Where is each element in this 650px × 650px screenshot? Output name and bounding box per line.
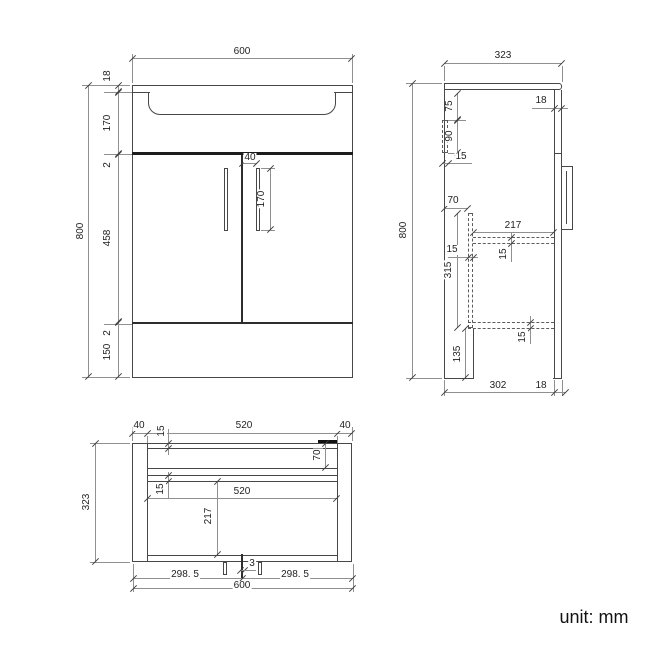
dim-front-handle-length: 170: [257, 190, 267, 209]
ext-line: [82, 377, 130, 378]
plan-left-handle: [223, 562, 227, 575]
side-door-top-joint: [554, 153, 562, 154]
side-shelf-top-hidden: [473, 237, 554, 238]
plan-rail-band-bottom: [147, 481, 337, 482]
dim-line-door-thickness: [532, 108, 568, 109]
dim-side-plinth-height: 135: [453, 345, 463, 364]
dim-front-handle-offset: 40: [243, 153, 256, 163]
dim-line-bracket-height: [457, 120, 458, 153]
side-door-bottom: [553, 378, 562, 379]
dim-side-bracket-offset: 75: [445, 99, 455, 112]
side-carcass-front: [554, 90, 555, 378]
dim-line-rail-depth: [325, 443, 326, 468]
dim-plan-left-panel: 40: [132, 421, 145, 431]
dim-line-front-height: [88, 85, 89, 377]
ext-line: [444, 380, 445, 396]
dim-plan-overall-width: 600: [233, 581, 252, 591]
dim-front-door-height: 458: [103, 229, 113, 248]
front-counter-top: [132, 85, 353, 86]
ext-line: [444, 66, 445, 81]
dim-plan-rail-depth: 70: [313, 448, 323, 461]
dim-line-divider-offset: [444, 208, 468, 209]
dim-line-bracket-offset: [457, 93, 458, 120]
dim-front-overall-height: 800: [76, 222, 86, 241]
dim-line-plan-shelf-depth: [217, 481, 218, 555]
dim-side-overall-height: 800: [399, 221, 409, 240]
dim-side-divider-height: 315: [444, 261, 454, 280]
dim-side-shelf-thickness: 15: [499, 247, 509, 260]
dim-plan-shelf-depth: 217: [204, 507, 214, 526]
side-floor-line-back: [444, 378, 474, 379]
front-basin-bowl: [148, 92, 336, 115]
unit-note: unit: mm: [558, 608, 629, 626]
dim-front-counter-thickness: 18: [103, 69, 113, 82]
side-bottom-panel-top-hidden: [468, 322, 554, 323]
dim-line-door-height: [118, 154, 119, 322]
dim-line-divider-height: [457, 213, 458, 328]
dim-plan-rail-thickness: 15: [156, 482, 166, 495]
front-counter-underside-right: [334, 92, 352, 93]
front-left-door-handle: [224, 168, 228, 231]
ext-line: [147, 436, 148, 443]
dim-side-divider-thickness: 15: [445, 245, 458, 255]
dim-side-bracket-thickness: 15: [454, 152, 467, 162]
dim-side-shelf-depth: 217: [504, 221, 523, 231]
dim-front-basin-zone: 170: [103, 114, 113, 133]
dim-plan-back-thickness: 15: [157, 424, 167, 437]
plan-rail-band-top: [147, 475, 337, 476]
dim-line-side-depth: [444, 63, 562, 64]
dim-line-interior-width: [147, 498, 337, 499]
ext-line: [554, 380, 555, 396]
dim-line-plinth-height: [118, 322, 119, 377]
front-door-bottom-line: [132, 322, 353, 324]
dim-line-basin-zone: [118, 92, 119, 154]
dim-front-overall-width: 600: [233, 47, 252, 57]
dim-front-gap-top: 2: [103, 161, 113, 169]
dim-plan-right-door-width: 298. 5: [280, 570, 310, 580]
dim-line-handle-length: [270, 168, 271, 230]
dim-plan-door-gap: 3: [248, 559, 256, 569]
dim-side-bottom-thickness: 15: [518, 330, 528, 343]
dim-side-overall-depth: 323: [494, 51, 513, 61]
dim-line-plinth-height-side: [465, 328, 466, 378]
side-door-front: [561, 90, 562, 378]
plan-right-handle: [258, 562, 262, 575]
dim-front-plinth-height: 150: [103, 343, 113, 362]
dim-plan-right-panel: 40: [338, 421, 351, 431]
dim-line-body-depth: [444, 392, 566, 393]
side-counter-profile: [444, 83, 562, 90]
front-left-edge: [132, 85, 133, 377]
side-plinth-recess-line: [473, 328, 474, 378]
dim-plan-overall-depth: 323: [82, 493, 92, 512]
plan-left-panel-inner: [147, 443, 148, 562]
ext-line: [337, 436, 338, 443]
dim-plan-top-opening: 520: [235, 421, 254, 431]
ext-line: [352, 427, 353, 441]
dim-side-body-depth: 302: [489, 381, 508, 391]
leader-line: [244, 570, 256, 571]
plan-right-panel-inner: [337, 443, 338, 562]
front-bottom-edge: [132, 377, 353, 378]
side-handle-inner-line: [566, 171, 567, 224]
dim-side-door-front-offset: 18: [534, 381, 547, 391]
ext-line: [90, 562, 130, 563]
dim-line-side-height: [412, 83, 413, 378]
front-right-edge: [352, 85, 353, 377]
dim-side-door-thickness: 18: [534, 96, 547, 106]
plan-back-panel-line: [147, 448, 337, 449]
dim-plan-left-door-width: 298. 5: [170, 570, 200, 580]
dim-side-divider-offset: 70: [446, 196, 459, 206]
side-bottom-panel-bottom-hidden: [468, 328, 554, 329]
dim-front-gap-bottom: 2: [103, 329, 113, 337]
ext-line: [562, 66, 563, 82]
dim-side-bracket-height: 90: [445, 129, 455, 142]
dim-line-front-width: [132, 58, 352, 59]
dim-line-handle-offset: [242, 163, 257, 164]
dim-plan-interior-width: 520: [233, 487, 252, 497]
front-door-split-line: [241, 155, 243, 322]
side-shelf-bottom-hidden: [473, 243, 554, 244]
side-divider-hidden: [468, 213, 473, 328]
technical-drawing-canvas: 600 800 18 170 2 458 2 150 40 170 323 80…: [0, 0, 650, 650]
side-handle-profile: [561, 166, 573, 230]
dim-line-plan-depth: [95, 443, 96, 562]
plan-back-rail-line: [147, 468, 337, 469]
